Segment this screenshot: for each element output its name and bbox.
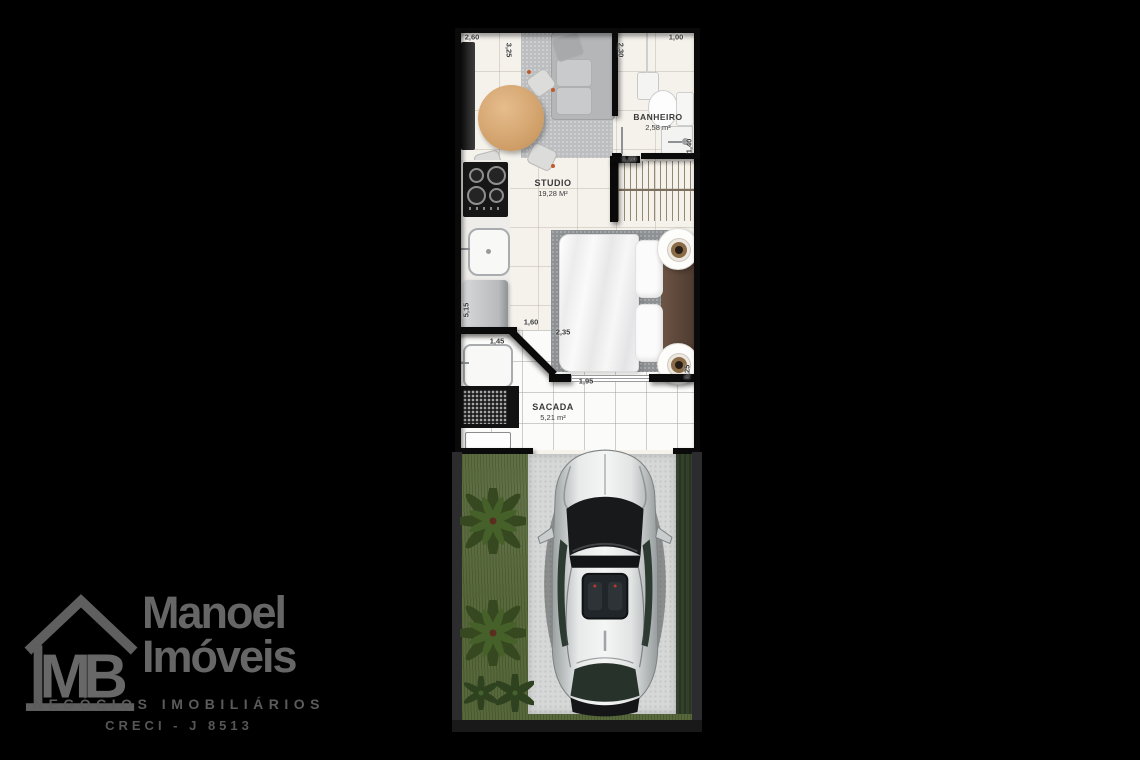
brand-tagline: NEGÓCIOS IMOBILIÁRIOS <box>24 696 334 712</box>
dining-table-icon <box>478 85 544 151</box>
grate-mesh <box>463 390 507 424</box>
wardrobe-rod <box>618 189 694 191</box>
agency-watermark: MB Manoel Imóveis NEGÓCIOS IMOBILIÁRIOS … <box>24 584 334 740</box>
coffee <box>675 246 683 254</box>
wall-bathroom-bottom <box>641 153 700 159</box>
balcony-shelf <box>465 432 511 449</box>
sacada-area: 5,21 m² <box>503 413 603 422</box>
sofa-cushion <box>556 59 592 87</box>
banheiro-label: BANHEIRO 2,58 m² <box>613 112 703 132</box>
dim-living-right: 3,25 <box>505 43 514 58</box>
plant-icon <box>460 600 526 666</box>
wall-top <box>455 28 700 33</box>
washtub-icon <box>463 344 513 388</box>
sacada-name: SACADA <box>503 402 603 413</box>
floorplan-image: STUDIO 19,28 M² BANHEIRO 2,58 m² SACADA … <box>0 0 1140 760</box>
brand-name-line2: Imóveis <box>142 634 296 679</box>
dim-bed-right: 3,25 <box>683 365 692 380</box>
wall-right <box>694 28 700 455</box>
banheiro-name: BANHEIRO <box>613 112 703 123</box>
sofa-cushion <box>556 87 592 115</box>
burner <box>489 188 504 203</box>
wardrobe-icon <box>618 161 694 221</box>
wall-bathroom-left <box>612 28 618 116</box>
stove-icon <box>463 162 508 217</box>
banheiro-area: 2,58 m² <box>613 123 703 132</box>
dim-bed-offset: 1,60 <box>524 318 539 327</box>
wall-left <box>455 28 461 455</box>
sofa-icon <box>551 32 615 120</box>
wall-closet-left <box>610 156 618 222</box>
brand-name-line1: Manoel <box>142 590 285 635</box>
plant-icon <box>496 674 534 712</box>
brand-registration: CRECI - J 8513 <box>24 718 334 733</box>
wall-balcony-left <box>549 374 571 382</box>
chair-knob <box>551 164 555 168</box>
sink-drain <box>486 249 491 254</box>
burner <box>469 168 484 183</box>
chair-knob <box>551 88 555 92</box>
dim-service-width: 1,45 <box>490 337 505 346</box>
dim-balcony-door: 1,95 <box>579 377 594 386</box>
dim-closet-width: 1,20 <box>622 155 637 164</box>
garage-wall-right <box>692 452 702 732</box>
apartment-plan: STUDIO 19,28 M² BANHEIRO 2,58 m² SACADA … <box>455 28 700 455</box>
studio-area: 19,28 M² <box>503 189 603 198</box>
dim-bath-right: 1,40 <box>685 139 694 154</box>
studio-name: STUDIO <box>503 178 603 189</box>
sink-icon <box>468 228 510 276</box>
dim-bath-left: 2,30 <box>617 43 626 58</box>
hedge-strip <box>674 454 692 714</box>
chair-knob <box>527 70 531 74</box>
car-icon <box>536 446 674 722</box>
shower-arm <box>668 141 682 143</box>
dim-left-wall: 5,15 <box>462 303 471 318</box>
studio-label: STUDIO 19,28 M² <box>503 178 603 199</box>
dim-living-top: 2,60 <box>465 33 480 42</box>
burner <box>467 186 486 205</box>
plant-icon <box>464 676 498 710</box>
sacada-label: SACADA 5,21 m² <box>503 402 603 423</box>
dim-bed-width: 2,35 <box>556 328 571 337</box>
dim-bath-top: 1,00 <box>669 33 684 42</box>
stove-knobs <box>469 207 503 210</box>
heater-cord <box>646 33 648 73</box>
plant-icon <box>460 488 526 554</box>
garage-area <box>452 448 702 732</box>
coffee-cup-icon <box>668 239 690 261</box>
bed-icon <box>559 234 639 372</box>
tv-panel-icon <box>461 42 475 150</box>
nightstand <box>657 228 699 270</box>
